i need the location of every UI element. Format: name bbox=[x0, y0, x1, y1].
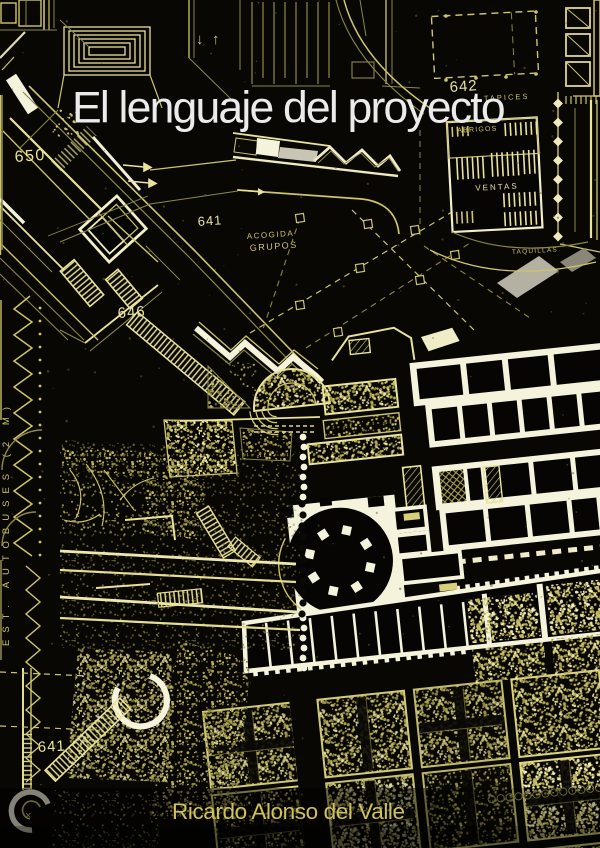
svg-text:641: 641 bbox=[197, 212, 223, 229]
svg-text:El lenguaje del proyecto: El lenguaje del proyecto bbox=[72, 84, 504, 133]
svg-text:Ricardo Alonso del Valle: Ricardo Alonso del Valle bbox=[172, 799, 405, 824]
svg-text:650: 650 bbox=[14, 147, 46, 166]
svg-text:×: × bbox=[134, 695, 140, 707]
svg-text:↑: ↑ bbox=[212, 31, 220, 48]
svg-text:↓: ↓ bbox=[196, 31, 204, 48]
